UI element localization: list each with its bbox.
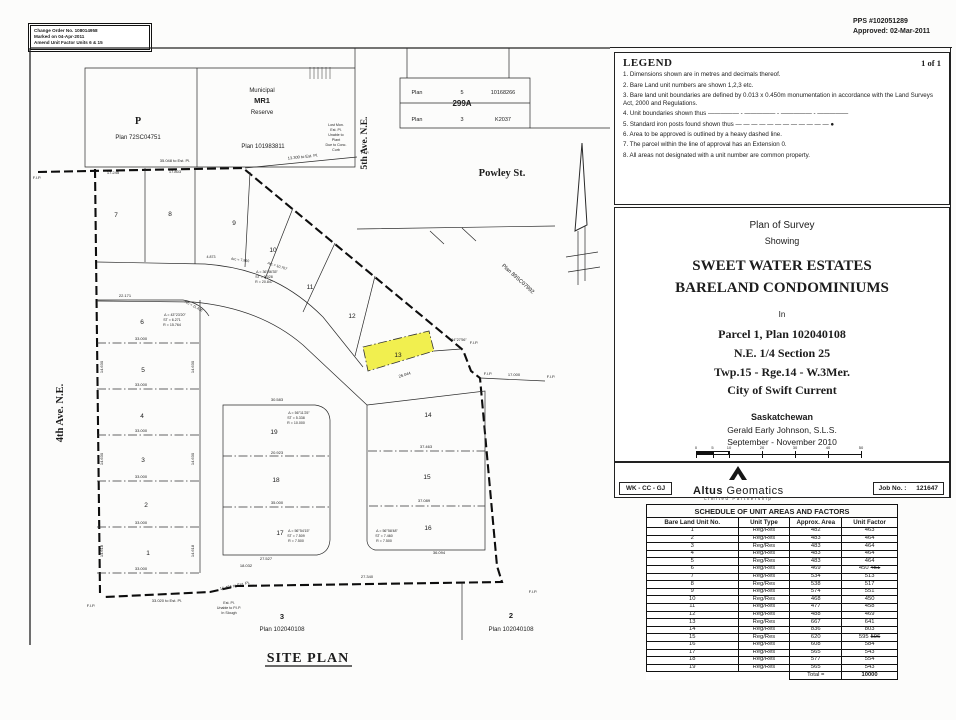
- job-number-value: 121647: [916, 485, 938, 492]
- scale-tick: [696, 451, 697, 458]
- unit-number-7: 7: [114, 212, 118, 219]
- units-1-6-outline: [97, 300, 209, 573]
- schedule-column-header: Bare Land Unit No.: [647, 518, 739, 528]
- unit-number-3: 3: [141, 457, 145, 464]
- dimension-label: 27.340: [361, 574, 374, 579]
- approval-boundary: [38, 168, 502, 597]
- schedule-cell-factor: 803: [842, 626, 898, 634]
- dimension-label: Arc = 11.436: [184, 300, 204, 313]
- dimension-label: 36.094: [433, 550, 446, 555]
- schedule-cell: Reg/Res: [738, 596, 790, 604]
- schedule-cell: 7: [647, 573, 739, 581]
- t299-cell: 3: [460, 117, 463, 123]
- schedule-cell-factor: 463: [842, 528, 898, 536]
- sheet-border-right: [950, 47, 951, 498]
- schedule-cell: Reg/Res: [738, 626, 790, 634]
- schedule-cell: Reg/Res: [738, 543, 790, 551]
- in-label: In: [615, 310, 949, 319]
- schedule-cell: Reg/Res: [738, 611, 790, 619]
- dimension-label: 14.630: [99, 360, 104, 373]
- schedule-cell-factor: 464: [842, 535, 898, 543]
- dimension-label: R = 20.847: [255, 280, 273, 284]
- unit-number-11: 11: [307, 284, 314, 291]
- schedule-cell: 2: [647, 535, 739, 543]
- firm-subtitle: Limited Partnership: [693, 496, 784, 501]
- units-1-6-dividers: [97, 343, 200, 573]
- schedule-cell: 608: [790, 641, 842, 649]
- dimension-label: F.I.P.: [484, 371, 493, 376]
- unit-number-16: 16: [424, 525, 432, 532]
- schedule-column-header: Unit Type: [738, 518, 790, 528]
- schedule-cell: 6: [647, 565, 739, 573]
- unit-number-13: 13: [394, 352, 402, 359]
- dimension-label: 22.171: [119, 293, 132, 298]
- unit-number-9: 9: [232, 220, 236, 227]
- t299-cell: 10168266: [491, 90, 515, 96]
- block-299a-outline: [400, 48, 530, 128]
- dimension-label: Arc = 7.860: [231, 257, 250, 264]
- dimension-label: 14.630: [99, 452, 104, 465]
- unit-number-2: 2: [144, 502, 148, 509]
- showing-label: Showing: [615, 236, 949, 246]
- schedule-cell: Reg/Res: [738, 550, 790, 558]
- schedule-cell-factor: 450451: [842, 565, 898, 573]
- schedule-cell: 565: [790, 664, 842, 672]
- dimension-label: 17.000: [508, 372, 521, 377]
- dimension-label: 14.618: [190, 544, 195, 557]
- t299-cell: Plan: [411, 90, 422, 96]
- schedule-table-container: SCHEDULE OF UNIT AREAS AND FACTORS Bare …: [646, 504, 898, 680]
- street-label-powley: Powley St.: [479, 168, 526, 179]
- dimension-label: 27.527: [260, 556, 273, 561]
- scale-tick: [762, 451, 763, 458]
- dimension-label: Δ = 36°46'35": [256, 270, 278, 274]
- scale-tick: [729, 451, 730, 458]
- reserve-label: Reserve: [251, 110, 274, 116]
- schedule-cell-factor: 551: [842, 588, 898, 596]
- dimension-label: 14.630: [190, 452, 195, 465]
- schedule-cell: 14: [647, 626, 739, 634]
- lane-south-edge: [97, 301, 367, 405]
- parcel-2-number: 2: [509, 611, 513, 620]
- schedule-header-row: Bare Land Unit No.Unit TypeApprox. AreaU…: [647, 518, 898, 528]
- dimension-label: 18.032: [240, 563, 253, 568]
- schedule-cell-factor: 458: [842, 603, 898, 611]
- street-label-5th-ave: 5th Ave. N.E.: [360, 117, 370, 170]
- schedule-row: 5Reg/Res483464: [647, 558, 898, 566]
- dimension-label: ST = 7.509: [287, 534, 305, 538]
- dimension-label: F.I.P.: [547, 374, 556, 379]
- survey-plan-page: { "header": { "change_order": ["Change O…: [0, 0, 956, 720]
- schedule-cell-factor: 517: [842, 581, 898, 589]
- schedule-total-cell: [647, 672, 739, 680]
- units-7-12-dividers: [145, 168, 375, 356]
- unit-13-highlight: [363, 331, 434, 371]
- schedule-cell-factor: 641: [842, 619, 898, 627]
- schedule-total-cell: [738, 672, 790, 680]
- schedule-cell: 16: [647, 641, 739, 649]
- schedule-cell: 836: [790, 626, 842, 634]
- legend-box: LEGEND 1 of 1 1. Dimensions shown are in…: [614, 52, 950, 205]
- pps-approved-date: Approved: 02-Mar-2011: [853, 27, 930, 37]
- schedule-cell: Reg/Res: [738, 535, 790, 543]
- dimension-label: ST = 6.271: [163, 318, 181, 322]
- north-arrow-icon: [566, 143, 600, 285]
- schedule-cell: Reg/Res: [738, 641, 790, 649]
- dimension-label: F.I.P.: [529, 589, 538, 594]
- unit-number-1: 1: [146, 550, 150, 557]
- dimension-label: ST = 7.460: [375, 534, 393, 538]
- schedule-cell: 469: [790, 565, 842, 573]
- schedule-cell: 538: [790, 581, 842, 589]
- dimension-label: 30.583: [271, 397, 284, 402]
- schedule-total-cell: Total =: [790, 672, 842, 680]
- schedule-title: SCHEDULE OF UNIT AREAS AND FACTORS: [646, 504, 898, 517]
- t299-cell: K2037: [495, 117, 511, 123]
- dates-line: September - November 2010: [615, 437, 949, 447]
- scale-tick-label: 40: [824, 445, 832, 450]
- schedule-cell-factor: 464: [842, 558, 898, 566]
- schedule-row: 18Reg/Res577554: [647, 657, 898, 665]
- schedule-cell: 483: [790, 543, 842, 551]
- dimension-label: F.I.P.: [87, 603, 96, 608]
- schedule-table: SCHEDULE OF UNIT AREAS AND FACTORS Bare …: [646, 504, 898, 680]
- unit-number-12: 12: [348, 313, 356, 320]
- dimension-label: 37.463: [420, 444, 433, 449]
- scale-tick: [861, 451, 862, 458]
- dimension-label: R = 7.500: [376, 539, 392, 543]
- mr1-label: MR1: [254, 96, 270, 105]
- dimension-label: R = 7.500: [288, 539, 304, 543]
- schedule-cell: 3: [647, 543, 739, 551]
- schedule-body: 1Reg/Res4824632Reg/Res4834643Reg/Res4834…: [647, 528, 898, 680]
- crew-initials-box: WK - CC - GJ: [619, 482, 672, 495]
- schedule-cell-factor: 554: [842, 657, 898, 665]
- schedule-cell: 534: [790, 573, 842, 581]
- legend-item: 2. Bare Land unit numbers are shown 1,2,…: [623, 82, 941, 90]
- dimension-label: In Slough: [221, 611, 236, 615]
- dimension-label: Δ = 56°58'48": [376, 529, 398, 533]
- schedule-cell: 4: [647, 550, 739, 558]
- schedule-cell: 19: [647, 664, 739, 672]
- dimension-label: 37.089: [418, 498, 431, 503]
- parcel-line: Parcel 1, Plan 102040108: [615, 327, 949, 342]
- unit-number-5: 5: [141, 367, 145, 374]
- legend-item: 8. All areas not designated with a unit …: [623, 152, 941, 160]
- parcel-3-plan: Plan 102040108: [259, 626, 305, 633]
- powley-street-edges: [357, 128, 610, 244]
- altus-logo-icon: [729, 466, 747, 480]
- dimension-label: 33.000: [135, 520, 148, 525]
- schedule-cell: 18: [647, 657, 739, 665]
- scale-tick-label: 5: [709, 445, 717, 450]
- unit-number-4: 4: [140, 413, 144, 420]
- schedule-row: 9Reg/Res574551: [647, 588, 898, 596]
- schedule-cell-factor: 469: [842, 611, 898, 619]
- schedule-row: 14Reg/Res836803: [647, 626, 898, 634]
- schedule-row: 15Reg/Res620595596: [647, 634, 898, 642]
- schedule-row: 1Reg/Res482463: [647, 528, 898, 536]
- dimension-label: 94°27'56": [451, 338, 467, 342]
- plan-of-survey: Plan of Survey: [615, 220, 949, 231]
- schedule-row: 7Reg/Res534513: [647, 573, 898, 581]
- schedule-cell: Reg/Res: [738, 603, 790, 611]
- schedule-cell: Reg/Res: [738, 565, 790, 573]
- schedule-cell: Reg/Res: [738, 588, 790, 596]
- schedule-cell: 10: [647, 596, 739, 604]
- legend-list: 1. Dimensions shown are in metres and de…: [623, 71, 941, 159]
- schedule-cell: 17: [647, 649, 739, 657]
- schedule-row: 12Reg/Res488469: [647, 611, 898, 619]
- dimension-label: Δ = 43°23'20": [164, 313, 186, 317]
- municipal-label: Municipal: [249, 88, 274, 94]
- site-plan-title: SITE PLAN: [267, 651, 350, 666]
- dimension-label: 35.048 to Est. Pl.: [160, 158, 190, 163]
- schedule-row: 16Reg/Res608584: [647, 641, 898, 649]
- legend-item: 6. Area to be approved is outlined by a …: [623, 131, 941, 139]
- firm-strip: WK - CC - GJ Altus Geomatics Limited Par…: [614, 462, 950, 498]
- schedule-cell: 565: [790, 649, 842, 657]
- scale-tick-label: 0: [692, 445, 700, 450]
- legend-item: 1. Dimensions shown are in metres and de…: [623, 71, 941, 79]
- quarter-line: N.E. 1/4 Section 25: [615, 346, 949, 361]
- site-plan-drawing: 4th Ave. N.E. 5th Ave. N.E. Powley St. P…: [25, 45, 615, 705]
- dimension-label: 17.803: [169, 169, 182, 174]
- t299-cell: 5: [460, 90, 463, 96]
- dimension-label: 4.873: [207, 255, 216, 259]
- schedule-row: 13Reg/Res667641: [647, 619, 898, 627]
- dimension-label: F.I.P.: [33, 175, 42, 180]
- schedule-cell: 477: [790, 603, 842, 611]
- schedule-cell-factor: 584: [842, 641, 898, 649]
- dimension-label: 33.000: [135, 566, 148, 571]
- schedule-row: 10Reg/Res468450: [647, 596, 898, 604]
- condo-name: BARELAND CONDOMINIUMS: [615, 280, 949, 297]
- dimension-label: Δ = 56°11'25": [288, 411, 310, 415]
- dimension-label: R = 15.764: [163, 323, 181, 327]
- city-line: City of Swift Current: [615, 383, 949, 398]
- dimension-label: Est. Pl.: [330, 128, 341, 132]
- dimension-label: Curb: [332, 148, 340, 152]
- schedule-cell: Reg/Res: [738, 649, 790, 657]
- parcel-p-label: P: [135, 116, 141, 127]
- dimension-label: Est. Pl.: [223, 601, 234, 605]
- unit-number-18: 18: [272, 477, 280, 484]
- province-line: Saskatchewan: [615, 412, 949, 422]
- schedule-cell: 5: [647, 558, 739, 566]
- schedule-cell: 483: [790, 550, 842, 558]
- schedule-cell: Reg/Res: [738, 619, 790, 627]
- legend-item: 4. Unit boundaries shown thus ————— - ——…: [623, 110, 941, 118]
- schedule-cell-factor: 543: [842, 664, 898, 672]
- scale-tick-label: 20: [758, 445, 766, 450]
- schedule-cell: 482: [790, 528, 842, 536]
- schedule-cell: 488: [790, 611, 842, 619]
- schedule-cell: Reg/Res: [738, 558, 790, 566]
- schedule-cell-factor: 464: [842, 550, 898, 558]
- dimension-label: 33.000: [135, 428, 148, 433]
- schedule-cell: 15: [647, 634, 739, 642]
- schedule-cell: 620: [790, 634, 842, 642]
- dimension-label: ST = 3.028: [255, 275, 273, 279]
- dimension-label: 14.618: [99, 544, 104, 557]
- dimension-label: Unable to: [328, 133, 343, 137]
- dimension-label: 26.044: [398, 370, 412, 379]
- unit-number-17: 17: [276, 530, 284, 537]
- schedule-row: 2Reg/Res483464: [647, 535, 898, 543]
- dimension-label: 13.300 to Est. Pl.: [287, 152, 318, 160]
- schedule-cell: 468: [790, 596, 842, 604]
- schedule-cell: 483: [790, 558, 842, 566]
- scale-tick-label: 10: [725, 445, 733, 450]
- schedule-cell: Reg/Res: [738, 528, 790, 536]
- plan-89sc07992-label: Plan 89SC07992: [500, 263, 535, 295]
- dimension-label: 33.000: [135, 382, 148, 387]
- scale-bar: 051020304050: [693, 447, 871, 461]
- dimension-label: F.I.P.: [361, 150, 370, 155]
- surveyor-line: Gerald Early Johnson, S.L.S.: [615, 425, 949, 435]
- schedule-total-row: Total =10000: [647, 672, 898, 680]
- schedule-cell-factor: 513: [842, 573, 898, 581]
- schedule-column-header: Approx. Area: [790, 518, 842, 528]
- superseded-value: 451: [871, 565, 881, 571]
- dimension-label: Plant: [332, 138, 340, 142]
- dimension-label: Lost Mon.: [328, 123, 344, 127]
- job-number-label: Job No. :: [879, 485, 907, 492]
- title-block: Plan of Survey Showing SWEET WATER ESTAT…: [614, 207, 950, 462]
- job-number-box: Job No. : 121647: [873, 482, 944, 495]
- dimension-label: 33.000: [135, 336, 148, 341]
- dimension-label: Due to Conc.: [326, 143, 347, 147]
- schedule-row: 17Reg/Res565543: [647, 649, 898, 657]
- scale-tick-label: 30: [791, 445, 799, 450]
- unit-number-14: 14: [424, 412, 432, 419]
- schedule-cell: Reg/Res: [738, 581, 790, 589]
- schedule-row: 8Reg/Res538517: [647, 581, 898, 589]
- schedule-row: 6Reg/Res469450451: [647, 565, 898, 573]
- scale-tick-label: 50: [857, 445, 865, 450]
- approval-boundary-west: [95, 169, 100, 593]
- schedule-cell: 577: [790, 657, 842, 665]
- schedule-cell: 574: [790, 588, 842, 596]
- township-line: Twp.15 - Rge.14 - W.3Mer.: [615, 365, 949, 380]
- page-number: 1 of 1: [921, 58, 941, 68]
- unit-number-6: 6: [140, 319, 144, 326]
- schedule-cell: 13: [647, 619, 739, 627]
- schedule-total-cell: 10000: [842, 672, 898, 680]
- scale-bar-segment: [713, 451, 730, 455]
- dimension-label: 33.000: [135, 474, 148, 479]
- schedule-cell: Reg/Res: [738, 664, 790, 672]
- dimension-label: Unable to P.I.P.: [217, 606, 241, 610]
- schedule-row: 4Reg/Res483464: [647, 550, 898, 558]
- dimension-label: Δ = 56°54'15": [288, 529, 310, 533]
- dimension-label: 20.923: [271, 450, 284, 455]
- estate-name: SWEET WATER ESTATES: [615, 258, 949, 275]
- superseded-value: 596: [871, 634, 881, 640]
- block-299a-label: 299A: [452, 99, 471, 108]
- unit-number-15: 15: [423, 474, 431, 481]
- pps-approval-stamp: PPS #102051289 Approved: 02-Mar-2011: [853, 17, 930, 37]
- scale-bar-segment: [696, 451, 713, 455]
- scale-tick: [828, 451, 829, 458]
- schedule-cell-factor: 464: [842, 543, 898, 551]
- schedule-cell: Reg/Res: [738, 657, 790, 665]
- unit-number-10: 10: [269, 247, 277, 254]
- firm-logo-block: Altus Geomatics Limited Partnership: [693, 466, 784, 501]
- pps-number: PPS #102051289: [853, 17, 930, 27]
- t299-cell: Plan: [411, 117, 422, 123]
- mr1-plan-number: Plan 101983811: [241, 144, 285, 150]
- sheet-border-top: [610, 47, 952, 48]
- lane-hatch: [310, 67, 330, 79]
- schedule-cell-factor: 543: [842, 649, 898, 657]
- schedule-cell: 9: [647, 588, 739, 596]
- legend-item: 5. Standard iron posts found shown thus …: [623, 121, 941, 129]
- schedule-row: 19Reg/Res565543: [647, 664, 898, 672]
- dimension-label: 17.245: [107, 170, 120, 175]
- parcel-3-number: 3: [280, 612, 284, 621]
- schedule-row: 11Reg/Res477458: [647, 603, 898, 611]
- parcel-p-mr1-outline: [85, 48, 355, 167]
- schedule-row: 3Reg/Res483464: [647, 543, 898, 551]
- schedule-cell-factor: 595596: [842, 634, 898, 642]
- scale-tick: [713, 451, 714, 458]
- unit-number-19: 19: [270, 429, 278, 436]
- street-label-4th-ave: 4th Ave. N.E.: [55, 383, 66, 442]
- schedule-cell: 8: [647, 581, 739, 589]
- dimension-label: F.I.P.: [470, 340, 479, 345]
- parcel-p-plan: Plan 72SC04751: [115, 135, 161, 141]
- schedule-cell: 11: [647, 603, 739, 611]
- unit-number-8: 8: [168, 211, 172, 218]
- schedule-cell: Reg/Res: [738, 573, 790, 581]
- scale-tick: [795, 451, 796, 458]
- schedule-cell: 1: [647, 528, 739, 536]
- schedule-cell: Reg/Res: [738, 634, 790, 642]
- legend-item: 7. The parcel within the line of approva…: [623, 141, 941, 149]
- schedule-cell: 483: [790, 535, 842, 543]
- parcel-2-plan: Plan 102040108: [488, 626, 534, 633]
- dimension-label: 33.020 to Est. Pl.: [152, 598, 182, 603]
- dimension-label: 16.464 to Est. Pl.: [219, 580, 250, 591]
- legend-title: LEGEND: [623, 57, 941, 69]
- schedule-cell: 667: [790, 619, 842, 627]
- dimension-label: 35.000: [271, 500, 284, 505]
- dimension-label: 14.630: [190, 360, 195, 373]
- schedule-column-header: Unit Factor: [842, 518, 898, 528]
- dimension-label: ST = 5.338: [287, 416, 305, 420]
- dimension-label: R = 10.000: [287, 421, 305, 425]
- schedule-cell-factor: 450: [842, 596, 898, 604]
- legend-item: 3. Bare land unit boundaries are defined…: [623, 92, 941, 108]
- schedule-cell: 12: [647, 611, 739, 619]
